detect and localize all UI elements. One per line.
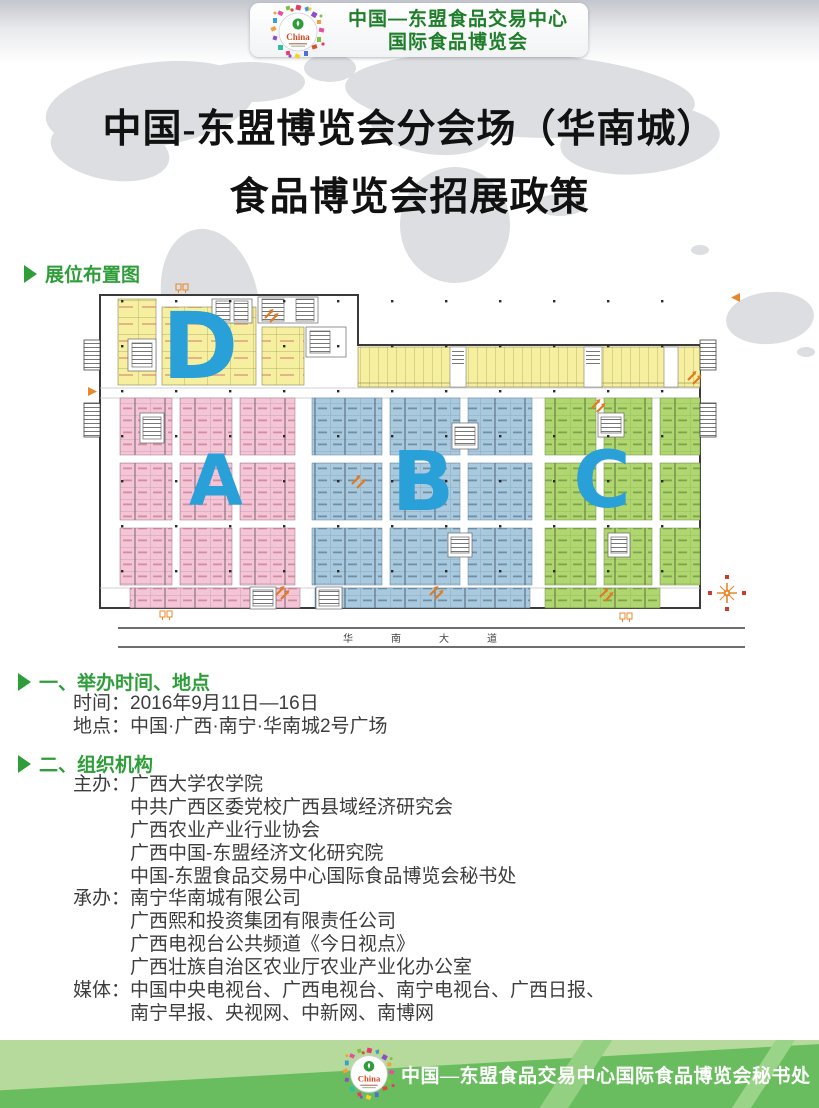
zone-letter-B: B	[392, 435, 455, 530]
road: 华南大道	[118, 628, 745, 647]
org-item: 广西大学农学院	[130, 774, 263, 797]
org-group-label	[73, 911, 130, 934]
road-label: 华南大道	[343, 632, 535, 645]
org-line: 广西熙和投资集团有限责任公司	[73, 911, 605, 934]
org-group-label	[73, 866, 130, 889]
expo-logo	[270, 4, 326, 60]
org-line: 南宁早报、央视网、中新网、南博网	[73, 1003, 605, 1026]
org-item: 南宁华南城有限公司	[130, 888, 301, 911]
schedule-line: 时间：2016年9月11日—16日	[73, 692, 388, 715]
footer-secretariat: 中国—东盟食品交易中心国际食品博览会秘书处	[401, 1040, 811, 1108]
section2-heading-row: 二、组织机构	[18, 750, 153, 777]
zone-letter-D: D	[162, 293, 238, 400]
compass-icon	[708, 575, 746, 611]
expo-org-name-line2: 国际食品博览会	[334, 31, 582, 54]
footer-band: 中国—东盟食品交易中心国际食品博览会秘书处	[0, 1040, 819, 1108]
expo-org-name: 中国—东盟食品交易中心 国际食品博览会	[334, 8, 582, 54]
org-item: 广西壮族自治区农业厅农业产业化办公室	[130, 957, 472, 980]
org-group-label	[73, 797, 130, 820]
zone-letter-A: A	[189, 440, 243, 522]
org-group-label	[73, 820, 130, 843]
org-line: 中共广西区委党校广西县域经济研究会	[73, 797, 605, 820]
section2-heading: 二、组织机构	[39, 750, 153, 777]
org-line: 广西中国-东盟经济文化研究院	[73, 843, 605, 866]
zone-letter-C: C	[573, 436, 630, 526]
section1-heading: 一、举办时间、地点	[39, 668, 210, 695]
org-item: 广西熙和投资集团有限责任公司	[130, 911, 396, 934]
org-item: 广西中国-东盟经济文化研究院	[130, 843, 383, 866]
org-group-label	[73, 843, 130, 866]
expo-header-banner: 中国—东盟食品交易中心 国际食品博览会	[250, 3, 588, 57]
org-line: 中国-东盟食品交易中心国际食品博览会秘书处	[73, 866, 605, 889]
org-item: 中国-东盟食品交易中心国际食品博览会秘书处	[130, 866, 516, 889]
section1-heading-row: 一、举办时间、地点	[18, 668, 210, 695]
page-title-line2: 食品博览会招展政策	[0, 166, 819, 222]
schedule-line: 地点：中国·广西·南宁·华南城2号广场	[73, 715, 388, 738]
expo-org-name-line1: 中国—东盟食品交易中心	[334, 8, 582, 31]
org-item: 中国中央电视台、广西电视台、南宁电视台、广西日报、	[130, 980, 605, 1003]
expo-logo	[342, 1047, 396, 1101]
organization-list: 主办：广西大学农学院中共广西区委党校广西县域经济研究会广西农业产业行业协会广西中…	[73, 774, 605, 1026]
poster-page: China 中国—东盟食品交易中心	[0, 0, 819, 1108]
org-group-label	[73, 957, 130, 980]
green-triangle-icon	[18, 673, 31, 691]
org-line: 承办：南宁华南城有限公司	[73, 888, 605, 911]
org-item: 广西农业产业行业协会	[130, 820, 320, 843]
org-item: 中共广西区委党校广西县域经济研究会	[130, 797, 453, 820]
org-line: 广西电视台公共频道《今日视点》	[73, 934, 605, 957]
org-line: 主办：广西大学农学院	[73, 774, 605, 797]
floor-plan: D A B C	[0, 283, 819, 655]
org-line: 媒体：中国中央电视台、广西电视台、南宁电视台、广西日报、	[73, 980, 605, 1003]
org-group-label: 承办：	[73, 888, 130, 911]
page-title-line1: 中国-东盟博览会分会场（华南城）	[0, 98, 819, 154]
green-triangle-icon	[18, 755, 31, 773]
org-group-label	[73, 1003, 130, 1026]
org-item: 南宁早报、央视网、中新网、南博网	[130, 1003, 434, 1026]
org-group-label: 媒体：	[73, 980, 130, 1003]
org-group-label: 主办：	[73, 774, 130, 797]
green-triangle-icon	[24, 265, 37, 283]
org-item: 广西电视台公共频道《今日视点》	[130, 934, 415, 957]
schedule-lines: 时间：2016年9月11日—16日地点：中国·广西·南宁·华南城2号广场	[73, 692, 388, 738]
org-line: 广西壮族自治区农业厅农业产业化办公室	[73, 957, 605, 980]
org-line: 广西农业产业行业协会	[73, 820, 605, 843]
org-group-label	[73, 934, 130, 957]
